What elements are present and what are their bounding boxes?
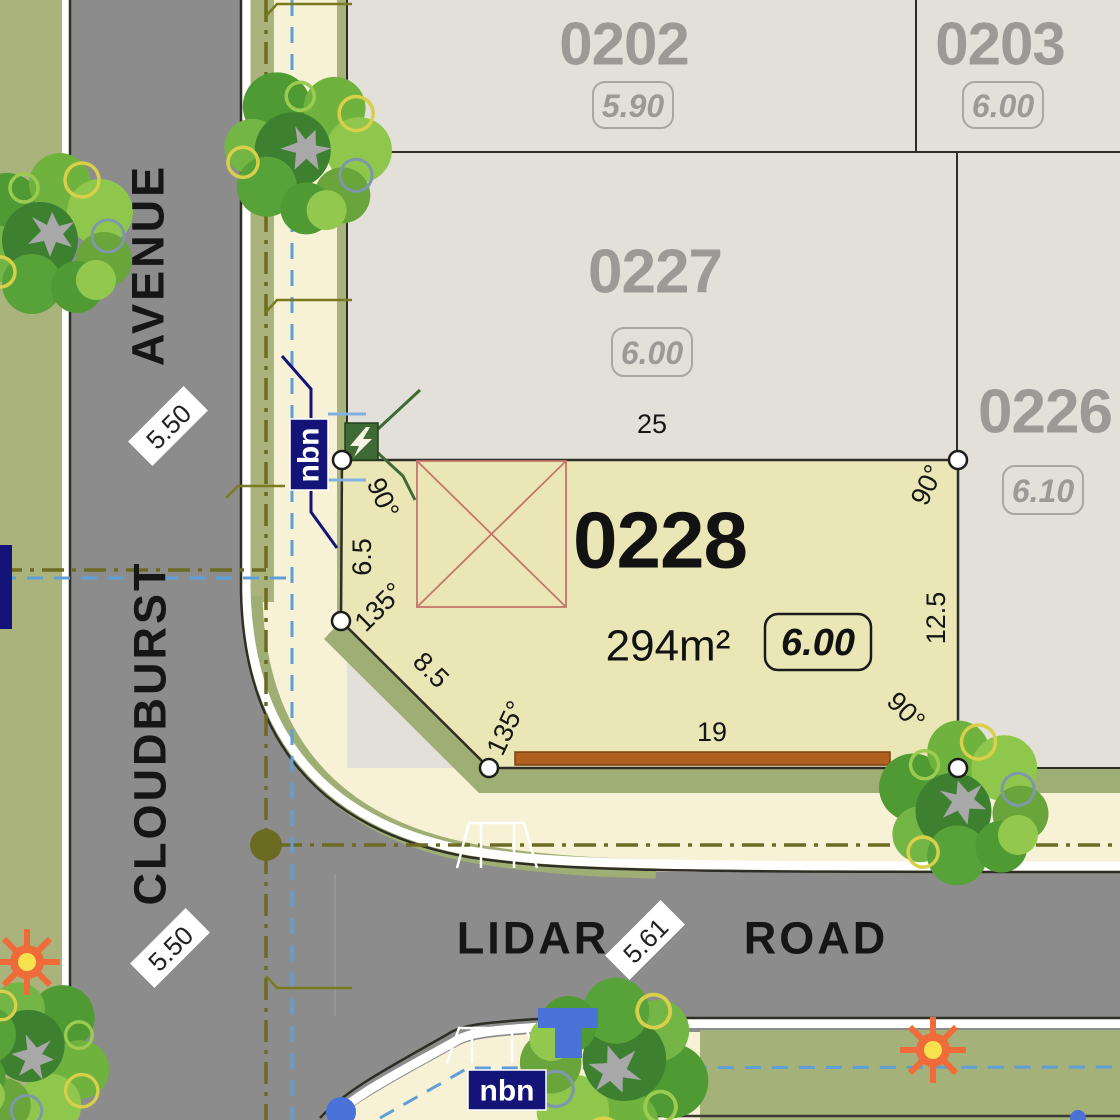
- dim-left: 6.5: [347, 538, 377, 576]
- lot-id: 0203: [935, 11, 1064, 78]
- dim-right: 12.5: [921, 592, 951, 645]
- street-lidar: LIDAR: [457, 913, 609, 964]
- frontage-value: 6.00: [781, 622, 855, 664]
- survey-peg: [949, 759, 967, 777]
- street-road: ROAD: [744, 913, 889, 964]
- frontage-value: 6.00: [621, 335, 683, 371]
- survey-peg: [332, 612, 350, 630]
- survey-peg: [480, 759, 498, 777]
- street-avenue: AVENUE: [123, 164, 174, 366]
- plan-svg: nbn nbn 0202 5.90 0203 6.00 0227 6.00 02…: [0, 0, 1120, 1120]
- nbn-pit-vertical: nbn: [290, 419, 328, 490]
- frontage-value: 6.10: [1012, 473, 1074, 509]
- retaining-wall: [515, 752, 890, 765]
- dim-top: 25: [637, 409, 667, 439]
- lot-id: 0226: [978, 378, 1112, 447]
- nbn-pit-horizontal: nbn: [468, 1070, 546, 1110]
- nbn-label: nbn: [293, 428, 326, 483]
- sewer-manhole: [250, 829, 282, 861]
- nbn-label: nbn: [480, 1075, 535, 1108]
- west-nbn-conduit-bar: [0, 545, 12, 629]
- lot-id: 0202: [559, 11, 688, 78]
- lot-id: 0228: [573, 496, 747, 585]
- lot-area: 294m²: [606, 622, 731, 671]
- street-cloudburst: CLOUDBURST: [125, 561, 176, 906]
- frontage-value: 6.00: [972, 88, 1034, 124]
- lot-id: 0227: [588, 238, 722, 307]
- dim-bottom: 19: [697, 717, 727, 747]
- frontage-value: 5.90: [602, 88, 664, 124]
- survey-peg: [333, 451, 351, 469]
- survey-peg: [949, 451, 967, 469]
- subdivision-plan-map: nbn nbn 0202 5.90 0203 6.00 0227 6.00 02…: [0, 0, 1120, 1120]
- south-verge-green: [700, 1030, 1120, 1120]
